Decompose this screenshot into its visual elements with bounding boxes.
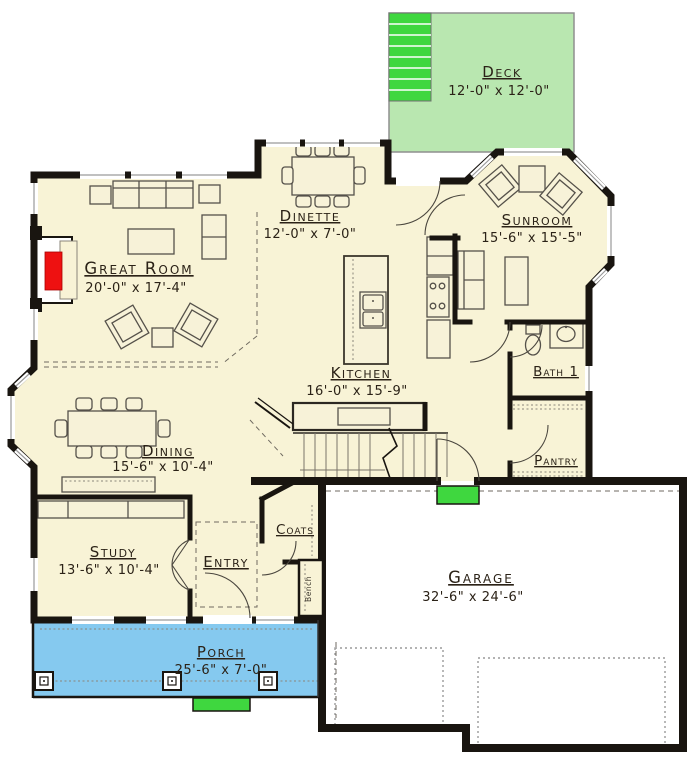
entry-label: Entry bbox=[203, 553, 249, 571]
study-dims: 13'-6" x 10'-4" bbox=[58, 563, 160, 578]
deck-label: Deck bbox=[482, 63, 521, 81]
dinette-dims: 12'-0" x 7'-0" bbox=[264, 227, 357, 242]
dining-label: Dining bbox=[142, 442, 194, 460]
dinette-label: Dinette bbox=[280, 207, 341, 225]
front-door-opening bbox=[203, 615, 252, 624]
bench-label: Bench bbox=[304, 576, 313, 602]
great-room-dims: 20'-0" x 17'-4" bbox=[85, 281, 187, 296]
porch-dims: 25'-6" x 7'-0" bbox=[175, 663, 268, 678]
porch-label: Porch bbox=[197, 643, 245, 661]
deck-door-opening bbox=[396, 177, 440, 186]
dining-dims: 15'-6" x 10'-4" bbox=[112, 460, 214, 475]
floor-plan-page: Deck 12'-0" x 12'-0" Great Room 20'-0" x… bbox=[0, 0, 700, 767]
furniture-study bbox=[38, 501, 184, 518]
porch-post-icon bbox=[35, 672, 53, 690]
kitchen-cabinet bbox=[427, 320, 450, 358]
kitchen-label: Kitchen bbox=[331, 364, 392, 382]
floor-plan-canvas: Deck 12'-0" x 12'-0" Great Room 20'-0" x… bbox=[0, 0, 700, 767]
study-label: Study bbox=[90, 543, 136, 561]
garage-label: Garage bbox=[448, 568, 514, 587]
kitchen-counter bbox=[293, 403, 425, 430]
bath-label: Bath 1 bbox=[533, 364, 579, 380]
coats-label: Coats bbox=[276, 522, 314, 538]
great-room-label: Great Room bbox=[84, 259, 193, 278]
pantry-label: Pantry bbox=[534, 453, 578, 469]
fridge-icon bbox=[427, 237, 453, 275]
garage-dims: 32'-6" x 24'-6" bbox=[422, 590, 524, 605]
range-icon bbox=[427, 277, 449, 317]
garage-floor bbox=[322, 481, 683, 748]
garage-entry-step bbox=[437, 486, 479, 504]
sunroom-label: Sunroom bbox=[502, 211, 573, 229]
sunroom-dims: 15'-6" x 15'-5" bbox=[481, 231, 583, 246]
deck-stairs-icon bbox=[389, 13, 431, 101]
deck-dims: 12'-0" x 12'-0" bbox=[448, 84, 550, 99]
kitchen-dims: 16'-0" x 15'-9" bbox=[306, 384, 408, 399]
porch-step bbox=[193, 698, 250, 711]
